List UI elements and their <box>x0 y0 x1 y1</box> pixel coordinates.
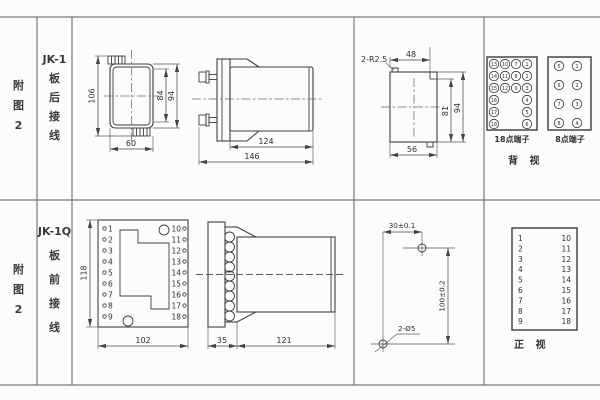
terminal-block-18pt: 13 10 7 1 14 11 8 2 15 12 9 3 16 4 17 5 … <box>487 57 537 130</box>
terminal-number: 15 <box>491 86 497 92</box>
table-cell: 4 <box>518 265 523 274</box>
figure-label-char: 附 <box>13 80 24 91</box>
pin-label: 13 <box>171 258 181 267</box>
terminal-number: 1 <box>575 64 578 70</box>
pin-label: 6 <box>108 280 113 289</box>
terminal-number: 11 <box>502 74 508 80</box>
dim-100: 100±0.2 <box>438 280 447 311</box>
view-label-front: 正 视 <box>514 336 549 351</box>
model-label-jk1: JK-1 板 后 接 线 <box>37 54 72 141</box>
jk1q-front-view-drawing: 1 2 3 4 5 6 7 8 9 10 11 12 13 14 15 16 1… <box>80 220 189 349</box>
table-cell: 10 <box>561 234 571 243</box>
pin-label: 16 <box>171 291 181 300</box>
model-char: 线 <box>49 322 60 333</box>
table-cell: 3 <box>518 255 523 264</box>
caption-8pt: 8点端子 <box>544 134 596 145</box>
dim-121: 121 <box>276 336 291 345</box>
model-name: JK-1Q <box>38 226 71 237</box>
jk1q-side-view-drawing: 35 121 <box>196 222 346 349</box>
pin-label: 5 <box>108 269 113 278</box>
figure-label-char: 图 <box>13 100 24 111</box>
terminal-number: 9 <box>514 86 517 92</box>
terminal-number: 14 <box>491 74 497 80</box>
table-cell: 12 <box>561 255 571 264</box>
drawing-canvas: 106 84 94 60 <box>0 0 600 400</box>
jk1-panel-cutout-drawing: 48 2-R2.5 81 94 56 <box>361 47 466 158</box>
table-cell: 6 <box>518 286 523 295</box>
dim-118: 118 <box>80 265 89 280</box>
figure-label-char: 2 <box>15 304 23 315</box>
terminal-number: 12 <box>502 86 508 92</box>
model-char: 线 <box>49 130 60 141</box>
model-char: 板 <box>49 73 60 84</box>
jk1-side-view-drawing: 124 146 <box>192 59 322 165</box>
jk1-front-view-drawing: 106 84 94 60 <box>88 50 181 152</box>
pin-label: 14 <box>171 269 181 278</box>
dim-56: 56 <box>407 145 417 154</box>
terminal-number: 1 <box>525 62 528 68</box>
label-2-d5: 2-Ø5 <box>398 324 415 333</box>
terminal-number: 7 <box>514 62 517 68</box>
table-cell: 13 <box>561 265 571 274</box>
table-cell: 1 <box>518 234 523 243</box>
model-char: 接 <box>49 298 60 309</box>
dim-94-cutout: 94 <box>453 103 462 113</box>
pin-label: 7 <box>108 291 113 300</box>
terminal-number: 10 <box>502 62 508 68</box>
pin-label: 1 <box>108 225 113 234</box>
pin-label: 9 <box>108 313 113 322</box>
terminal-block-8pt: 5 1 6 2 7 3 8 4 <box>548 57 591 130</box>
terminal-number: 6 <box>525 122 528 128</box>
figure-label-char: 附 <box>13 264 24 275</box>
table-cell: 14 <box>561 276 571 285</box>
terminal-number: 2 <box>575 83 578 89</box>
view-label-rear: 背 视 <box>508 152 543 167</box>
pin-label: 12 <box>171 247 181 256</box>
pin-label: 15 <box>171 280 181 289</box>
technical-drawing-page: { "colors": { "line": "#3f3f3f", "grid":… <box>0 0 600 400</box>
model-char: 前 <box>49 274 60 285</box>
drill-pattern-drawing: 30±0.1 100±0.2 2-Ø5 <box>371 221 455 352</box>
dim-48: 48 <box>406 50 416 59</box>
terminal-number: 13 <box>491 62 497 68</box>
table-cell: 5 <box>518 276 523 285</box>
dim-106: 106 <box>88 88 97 103</box>
terminal-number: 5 <box>525 110 528 116</box>
dim-35: 35 <box>217 336 227 345</box>
model-char: 板 <box>49 250 60 261</box>
dim-94: 94 <box>167 91 176 101</box>
terminal-number: 6 <box>557 83 560 89</box>
terminal-number: 7 <box>557 102 560 108</box>
figure-label-bottom: 附 图 2 <box>0 264 37 315</box>
terminal-number: 8 <box>557 121 560 127</box>
pin-label: 10 <box>171 225 181 234</box>
figure-label-char: 2 <box>15 120 23 131</box>
figure-label-char: 图 <box>13 284 24 295</box>
model-char: 后 <box>49 92 60 103</box>
dim-102: 102 <box>135 336 150 345</box>
table-cell: 11 <box>561 244 571 253</box>
table-cell: 18 <box>561 317 571 326</box>
caption-18pt: 18点端子 <box>484 134 540 145</box>
dim-60: 60 <box>126 139 136 148</box>
pin-label: 4 <box>108 258 113 267</box>
table-cell: 8 <box>518 307 523 316</box>
terminal-number: 2 <box>525 74 528 80</box>
dim-146: 146 <box>244 152 259 161</box>
terminal-number: 3 <box>575 102 578 108</box>
terminal-number: 5 <box>557 64 560 70</box>
table-cell: 9 <box>518 317 523 326</box>
table-grid <box>0 17 600 385</box>
terminal-number: 17 <box>491 110 497 116</box>
table-cell: 17 <box>561 307 571 316</box>
table-cell: 7 <box>518 296 523 305</box>
terminal-number: 16 <box>491 98 497 104</box>
terminal-number: 4 <box>575 121 578 127</box>
pin-label: 17 <box>171 302 181 311</box>
dim-84: 84 <box>156 90 165 100</box>
dim-30: 30±0.1 <box>389 221 416 230</box>
table-cell: 2 <box>518 244 523 253</box>
table-cell: 15 <box>561 286 571 295</box>
terminal-table-front: 110 211 312 413 514 615 716 817 918 <box>512 228 577 330</box>
terminal-number: 3 <box>525 86 528 92</box>
model-char: 接 <box>49 111 60 122</box>
terminal-number: 18 <box>491 122 497 128</box>
pin-label: 11 <box>171 236 181 245</box>
pin-label: 18 <box>171 313 181 322</box>
terminal-number: 8 <box>514 74 517 80</box>
dim-124: 124 <box>258 137 273 146</box>
dim-81: 81 <box>441 106 450 116</box>
label-2-r2.5: 2-R2.5 <box>361 55 387 64</box>
terminal-number: 4 <box>525 98 528 104</box>
pin-label: 8 <box>108 302 113 311</box>
model-label-jk1q: JK-1Q 板 前 接 线 <box>37 226 72 333</box>
table-cell: 16 <box>561 296 571 305</box>
figure-label-top: 附 图 2 <box>0 80 37 131</box>
model-name: JK-1 <box>43 54 67 65</box>
pin-label: 3 <box>108 247 113 256</box>
pin-label: 2 <box>108 236 113 245</box>
